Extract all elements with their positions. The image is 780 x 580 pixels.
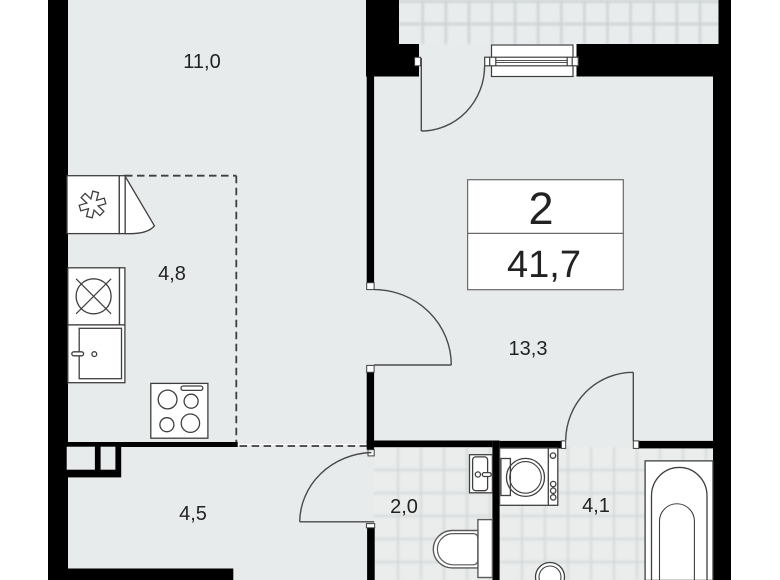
svg-text:41,7: 41,7 [507,244,581,286]
svg-text:4,1: 4,1 [582,495,610,517]
svg-text:4,8: 4,8 [158,263,186,285]
svg-text:4,5: 4,5 [179,503,207,525]
svg-text:13,3: 13,3 [509,338,548,360]
svg-text:2: 2 [528,183,553,234]
svg-text:11,0: 11,0 [183,51,220,73]
svg-text:2,0: 2,0 [390,496,418,518]
